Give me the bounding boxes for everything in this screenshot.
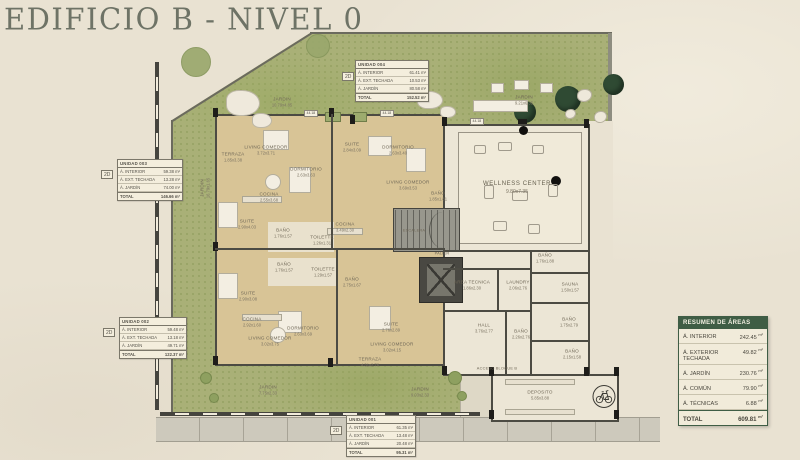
room-label: TERRAZA 1.85x3.38: [222, 151, 245, 162]
plan-feature: [457, 391, 467, 401]
room-label: ACCESO BLOQUE B: [477, 365, 517, 370]
plan-feature: [518, 119, 527, 124]
property-line-top: [310, 32, 612, 34]
room-label: BAÑO 1.76x1.57: [275, 261, 293, 272]
room-label: BAÑO 1.76x1.88: [536, 252, 554, 263]
room-label: SUITE 2.84x3.09: [343, 141, 361, 152]
room-label: TERRAZA 4.31x2.76: [359, 356, 382, 367]
room-label: JARDIN 10.79x4.85: [272, 96, 292, 107]
plan-feature: [505, 379, 575, 385]
plan-feature: [442, 366, 447, 375]
unit-001-badge: 2D: [330, 426, 342, 435]
room-label: BAÑO 1.75x2.79: [560, 316, 578, 327]
plan-feature: [336, 250, 338, 366]
room-label: DORMITORIO 2.63x3.69: [287, 325, 319, 336]
room-label: COCINA 2.55x3.68: [259, 191, 278, 202]
summary-row: Á. COMÚN79.90 m²: [679, 380, 767, 395]
unit-002-badge: 2D: [103, 328, 115, 337]
plan-feature: [443, 268, 530, 270]
plan-feature: [213, 108, 218, 117]
room-label: DORMITORIO 2.63x3.40: [382, 144, 414, 155]
unit-003-title: UNIDAD 003: [118, 160, 182, 168]
table-row: Á. INTERIOR61.35 m²: [347, 424, 415, 432]
summary-header: RESUMEN DE ÁREAS: [679, 317, 767, 329]
table-row: Á. JARDÍN80.58 m²: [356, 85, 428, 93]
plan-feature: [209, 393, 219, 403]
summary-row: Á. EXTERIOR TECHADA49.82 m²: [679, 344, 767, 365]
table-row: Á. INTERIOR61.41 m²: [356, 69, 428, 77]
room-label: COCINA 2.92x1.60: [242, 316, 261, 327]
unit-004-badge: 2D: [342, 72, 354, 81]
room-label: PALIER: [435, 250, 450, 255]
room-label: LIVING COMEDOR 3.02x4.15: [370, 341, 413, 352]
plan-feature: [584, 367, 589, 376]
plan-feature: [519, 126, 528, 135]
room-label: HALL 3.76x2.77: [475, 322, 493, 333]
summary-row: Á. INTERIOR242.45 m²: [679, 329, 767, 344]
plan-feature: 44.18: [304, 110, 318, 117]
room-label: JARDIN 7.75x2.33: [259, 384, 277, 395]
plan-feature: [491, 83, 504, 93]
room-label: SUITE 2.90x3.08: [239, 290, 257, 301]
plan-feature: [200, 372, 212, 384]
table-row: Á. JARDÍN20.48 m²: [347, 440, 415, 448]
plan-feature: [530, 272, 590, 274]
plan-feature: [530, 340, 590, 342]
unit-003-badge: 2D: [101, 170, 113, 179]
plan-feature: [226, 90, 260, 116]
plan-feature: [530, 302, 590, 304]
room-label: SAUNA 1.50x1.57: [561, 281, 579, 292]
plan-feature: [448, 371, 462, 385]
table-total-row: TOTAL122.37 m²: [120, 350, 186, 358]
summary-row: Á. JARDÍN230.76 m²: [679, 365, 767, 380]
unit-001-table: UNIDAD 001 Á. INTERIOR61.35 m² Á. EXT. T…: [346, 415, 416, 457]
room-label: AREA TECNICA 1.86x2.30: [454, 279, 490, 290]
summary-total-row: TOTAL609.81 m²: [679, 410, 767, 425]
plan-feature: [443, 310, 530, 312]
plan-feature: [474, 145, 486, 154]
room-label: SUITE 2.90x4.03: [238, 218, 256, 229]
table-row: Á. INTERIOR59.38 m²: [118, 168, 182, 176]
plan-feature: [252, 113, 272, 128]
plan-feature: [213, 356, 218, 365]
plan-feature: 44.18: [380, 110, 394, 117]
plan-feature: [218, 273, 238, 299]
table-total-row: TOTAL152.52 m²: [356, 93, 428, 101]
table-row: Á. JARDÍN49.71 m²: [120, 342, 186, 350]
plan-feature: [584, 119, 589, 128]
room-label: BAÑO 1.76x1.57: [274, 227, 292, 238]
plan-feature: [532, 145, 544, 154]
plan-feature: [614, 367, 619, 376]
room-label: BAÑO 1.85x1.81: [429, 190, 447, 201]
unit-002-title: UNIDAD 002: [120, 318, 186, 326]
plan-feature: [353, 112, 367, 122]
plan-feature: [497, 268, 499, 311]
room-label: JARDIN 16.79x1.65: [199, 178, 210, 198]
plan-feature: [331, 114, 333, 249]
plan-feature: [528, 224, 540, 234]
plan-feature: [218, 202, 238, 228]
room-label: JARDIN 9.21x6.35: [515, 94, 533, 105]
plan-feature: 44.18: [470, 118, 484, 125]
table-row: Á. EXT. TECHADA13.28 m²: [118, 176, 182, 184]
plan-feature: [350, 115, 355, 124]
unit-004-title: UNIDAD 004: [356, 61, 428, 69]
floorplan-page: EDIFICIO B - NIVEL 0 44.1844.1844.18 TER…: [0, 0, 800, 460]
room-label: TOILETTE 1.26x1.31: [310, 234, 333, 245]
room-label: SUITE 2.76x2.89: [382, 321, 400, 332]
room-label: BAÑO 2.26x2.76: [512, 328, 530, 339]
room-label: BAÑO 2.75x1.67: [343, 276, 361, 287]
plan-feature: [442, 117, 447, 126]
room-label: DEPOSITO 5.85x3.88: [527, 389, 552, 400]
plan-feature: [306, 34, 330, 58]
plan-feature: [614, 410, 619, 419]
plan-feature: [328, 358, 333, 367]
unit-003-table: UNIDAD 003 Á. INTERIOR59.38 m² Á. EXT. T…: [117, 159, 183, 201]
plan-feature: [514, 80, 529, 90]
plan-feature: [265, 174, 281, 190]
room-label: BAÑO 2.15x1.58: [563, 348, 581, 359]
unit-004-table: UNIDAD 004 Á. INTERIOR61.41 m² Á. EXT. T…: [355, 60, 429, 102]
room-label: WELLNESS CENTER 9.80x7.35: [483, 181, 551, 195]
unit-002-table: UNIDAD 002 Á. INTERIOR59.48 m² Á. EXT. T…: [119, 317, 187, 359]
table-total-row: TOTAL95.31 m²: [347, 448, 415, 456]
plan-feature: [505, 409, 575, 415]
room-label: TOILETTE 1.29x1.57: [311, 266, 334, 277]
room-label: DORMITORIO 2.63x3.63: [290, 166, 322, 177]
room-label: COCINA 3.49x2.30: [335, 221, 354, 232]
room-label: ESCALERA: [403, 227, 425, 232]
bicycle-icon: [591, 383, 617, 409]
room-label: LIVING COMEDOR 3.02x3.75: [248, 335, 291, 346]
plan-feature: [540, 83, 553, 93]
plan-feature: [530, 250, 532, 376]
plan-feature: [493, 221, 507, 231]
room-label: LIVING COMEDOR 3.69x3.53: [386, 179, 429, 190]
table-row: Á. EXT. TECHADA13.48 m²: [347, 432, 415, 440]
table-total-row: TOTAL146.66 m²: [118, 192, 182, 200]
unit-001-title: UNIDAD 001: [347, 416, 415, 424]
summary-row: Á. TÉCNICAS6.88 m²: [679, 395, 767, 410]
room-label: JARDIN 9.03x2.33: [411, 386, 429, 397]
table-row: Á. EXT. TECHADA10.53 m²: [356, 77, 428, 85]
areas-summary-table: RESUMEN DE ÁREAS Á. INTERIOR242.45 m² Á.…: [678, 316, 768, 426]
plan-feature: [489, 410, 494, 419]
plan-feature: [443, 250, 590, 252]
paved-strip-right: [589, 121, 613, 376]
plan-feature: [603, 74, 624, 95]
plan-feature: [215, 248, 445, 250]
scale-bar-horizontal: [160, 412, 480, 416]
room-label: LIVING COMEDOR 3.72x3.71: [244, 144, 287, 155]
plan-feature: [181, 47, 211, 77]
room-label: LAUNDRY 2.06x2.76: [506, 279, 529, 290]
table-row: Á. JARDÍN74.00 m²: [118, 184, 182, 192]
table-row: Á. INTERIOR59.48 m²: [120, 326, 186, 334]
plan-feature: [498, 142, 512, 151]
table-row: Á. EXT. TECHADA13.18 m²: [120, 334, 186, 342]
